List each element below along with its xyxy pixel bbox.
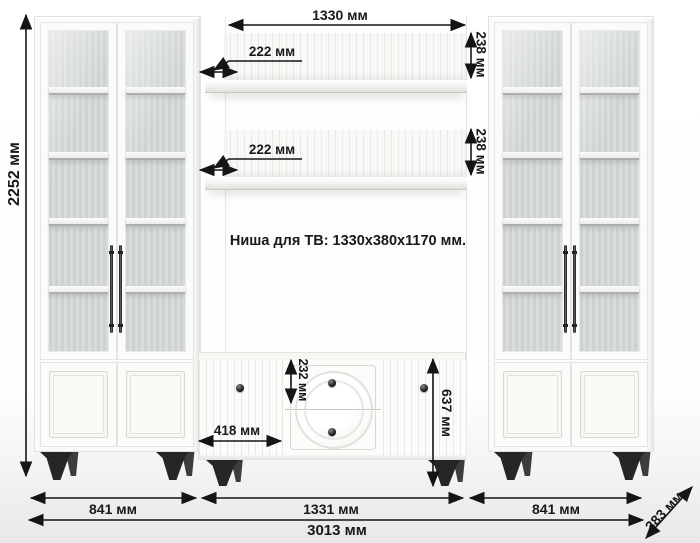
lower-shelf-board (205, 177, 467, 190)
cabinet-shelf (126, 87, 185, 95)
cabinet-shelf (503, 152, 562, 160)
cabinet-shelf (580, 218, 639, 226)
door-panel (49, 371, 108, 438)
right-cabinet-lower-door-left (494, 362, 571, 447)
cabinet-shelf (49, 286, 108, 294)
cabinet-leg (494, 452, 527, 480)
left-cabinet-glass-door-left (40, 22, 117, 360)
wall-unit-dimension-diagram: 2252 мм 1330 мм 222 мм 238 мм 222 мм 238… (0, 0, 700, 543)
cabinet-shelf (580, 87, 639, 95)
door-handle (110, 245, 113, 333)
dim-stand-width-label: 1331 мм (291, 501, 371, 517)
right-cabinet-glass-door-right (571, 22, 648, 360)
cabinet-shelf (49, 218, 108, 226)
cabinet-shelf (580, 286, 639, 294)
tv-niche-note: Ниша для ТВ: 1330x380x1170 мм. (213, 233, 483, 249)
door-handle (564, 245, 567, 333)
cabinet-leg (156, 452, 189, 480)
dim-lower-shelf-height-label: 238 мм (474, 117, 489, 187)
door-panel (503, 371, 562, 438)
dim-drawer-height-label: 232 мм (296, 345, 310, 415)
dim-lower-shelf-depth-label: 222 мм (237, 142, 307, 157)
door-handle (573, 245, 576, 333)
glass-panel (125, 30, 186, 352)
left-cabinet-lower-door-left (40, 362, 117, 447)
cabinet-shelf (126, 286, 185, 294)
cabinet-shelf (503, 286, 562, 294)
cabinet-shelf (580, 152, 639, 160)
right-cabinet-lower-door-right (571, 362, 648, 447)
left-cabinet-lower-door-right (117, 362, 194, 447)
dim-upper-shelf-depth-label: 222 мм (237, 44, 307, 59)
dim-left-width-label: 841 мм (73, 501, 153, 517)
tv-stand (198, 352, 466, 460)
tv-stand-door-left (199, 360, 283, 455)
dim-depth-label: 383 мм (634, 480, 693, 542)
door-panel (580, 371, 639, 438)
upper-shelf-board (205, 80, 467, 93)
dim-niche-width-label: 1330 мм (300, 7, 380, 23)
knob (328, 428, 336, 436)
dim-total-width-label: 3013 мм (297, 522, 377, 539)
cabinet-shelf (49, 152, 108, 160)
knob (420, 384, 428, 392)
cabinet-shelf (126, 218, 185, 226)
cabinet-shelf (503, 87, 562, 95)
left-cabinet-glass-door-right (117, 22, 194, 360)
cabinet-shelf (49, 87, 108, 95)
glass-panel (502, 30, 563, 352)
knob (236, 384, 244, 392)
dim-upper-shelf-height-label: 238 мм (474, 20, 489, 90)
cabinet-leg (40, 452, 73, 480)
cabinet-shelf (503, 218, 562, 226)
dim-stand-door-width-label: 418 мм (202, 423, 272, 438)
cabinet-shelf (126, 152, 185, 160)
cabinet-leg (612, 452, 645, 480)
right-cabinet (488, 16, 654, 452)
door-handle (119, 245, 122, 333)
left-cabinet (34, 16, 200, 452)
dim-total-height-label: 2252 мм (6, 134, 24, 214)
glass-panel (579, 30, 640, 352)
dim-stand-height-label: 637 мм (439, 373, 455, 453)
dim-right-width-label: 841 мм (516, 501, 596, 517)
right-cabinet-glass-door-left (494, 22, 571, 360)
knob (328, 379, 336, 387)
door-panel (126, 371, 185, 438)
glass-panel (48, 30, 109, 352)
